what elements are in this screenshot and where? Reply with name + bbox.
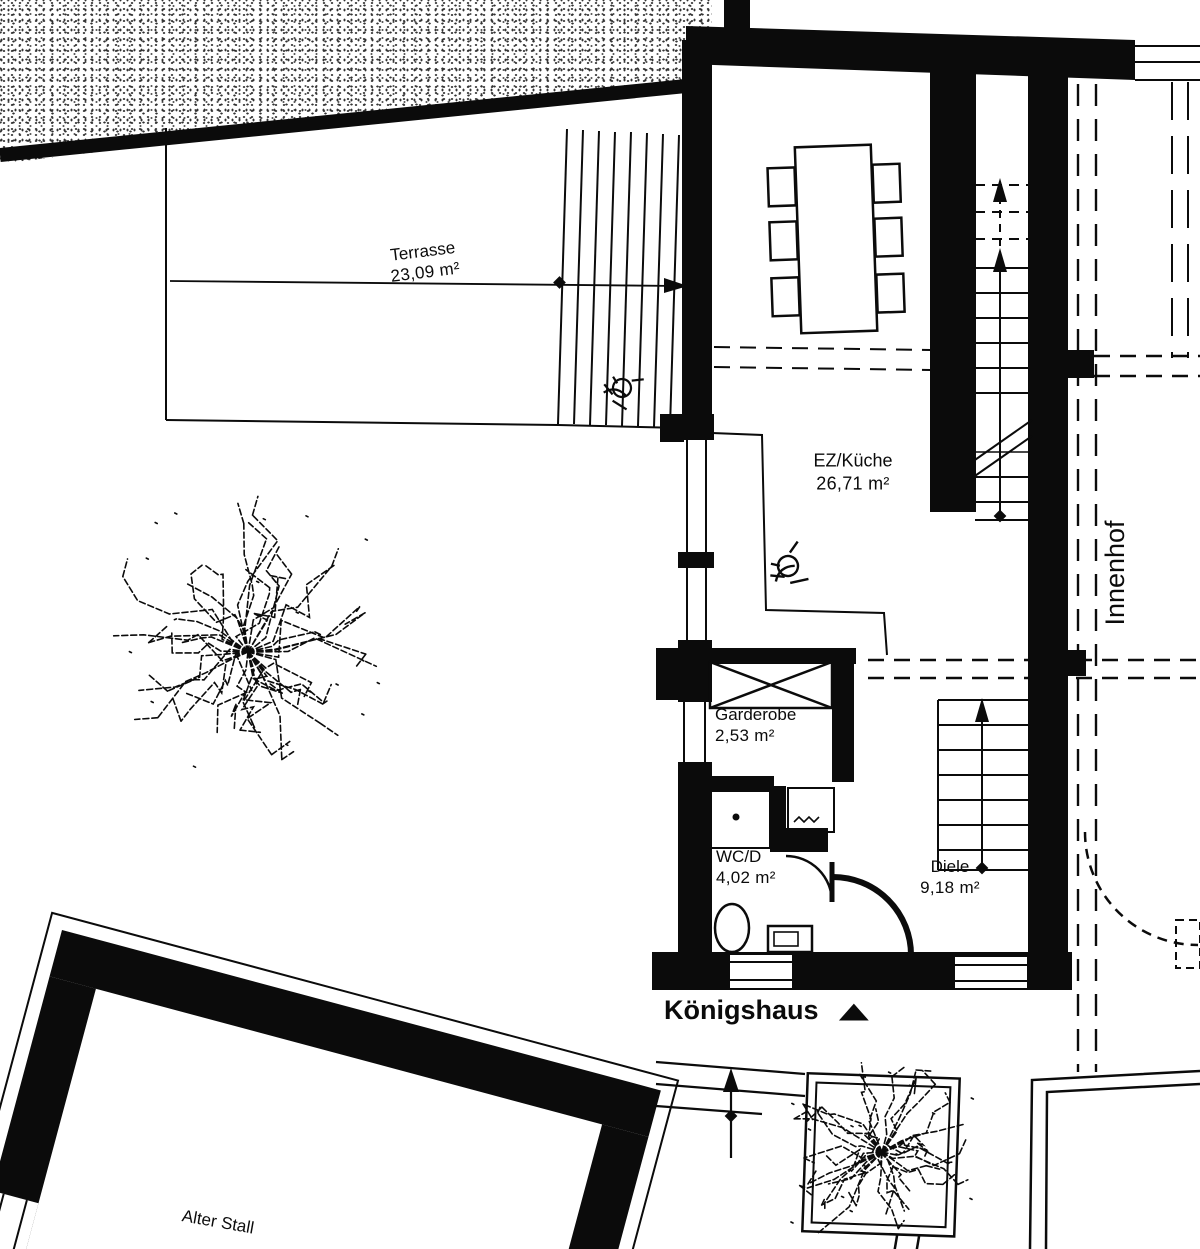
wc-door-arc — [786, 856, 832, 902]
stair-up-arrow — [975, 698, 989, 722]
room-area: 9,18 m² — [920, 877, 980, 898]
window-glazing — [684, 428, 706, 762]
building-walls — [652, 0, 1135, 990]
far-building-outline — [1030, 1071, 1200, 1249]
shower — [706, 790, 770, 848]
room-name: Diele — [920, 856, 980, 877]
room-area: 4,02 m² — [716, 867, 776, 888]
chair — [769, 221, 797, 260]
room-name: Garderobe — [715, 704, 796, 725]
wardrobe-box — [710, 662, 832, 708]
kitchen-gallery-dashes — [714, 347, 930, 370]
room-label-wc: WC/D 4,02 m² — [716, 846, 776, 889]
toilet — [715, 904, 812, 952]
room-label-diele: Diele 9,18 m² — [920, 856, 980, 899]
room-label-terrasse: Terrasse 23,09 m² — [387, 237, 461, 288]
chair — [876, 274, 904, 313]
area-label-innenhof: Innenhof — [1099, 520, 1133, 625]
tree-symbol — [114, 496, 380, 767]
building-label-koenigshaus: Königshaus ▲ — [664, 994, 870, 1028]
stair-up-arrow — [993, 178, 1007, 202]
plan-linework — [0, 0, 1200, 1249]
staircase-lower — [938, 698, 1028, 874]
vegetation-edge-line — [0, 84, 706, 155]
floor-plan: Terrasse 23,09 m² EZ/Küche 26,71 m² Gard… — [0, 0, 1200, 1249]
room-name: EZ/Küche — [813, 450, 892, 473]
orientation-triangle-icon: ▲ — [828, 999, 878, 1023]
washbasin — [788, 788, 834, 832]
entry-door-arc — [833, 877, 911, 955]
staircase-upper — [972, 178, 1032, 522]
building-name: Königshaus — [664, 994, 819, 1028]
walkway — [656, 1062, 805, 1158]
stair-up-arrow — [993, 248, 1007, 272]
walkway-arrow — [723, 1068, 739, 1092]
room-area: 26,71 m² — [813, 472, 892, 495]
room-label-ez-kueche: EZ/Küche 26,71 m² — [813, 450, 892, 495]
room-label-garderobe: Garderobe 2,53 m² — [715, 704, 796, 747]
innenhof-rail-lines — [1135, 46, 1200, 358]
chair — [874, 218, 902, 257]
chair — [771, 277, 799, 316]
terrace-decking — [558, 129, 679, 427]
chair — [872, 164, 900, 203]
chair — [768, 167, 796, 206]
room-area: 2,53 m² — [715, 725, 796, 746]
person-icon — [762, 542, 815, 594]
dashed-door-arc — [1085, 832, 1198, 945]
room-name: WC/D — [716, 846, 776, 867]
alter-stall-walls — [0, 913, 678, 1249]
dining-table — [795, 145, 877, 334]
dining-table-set — [767, 144, 905, 334]
